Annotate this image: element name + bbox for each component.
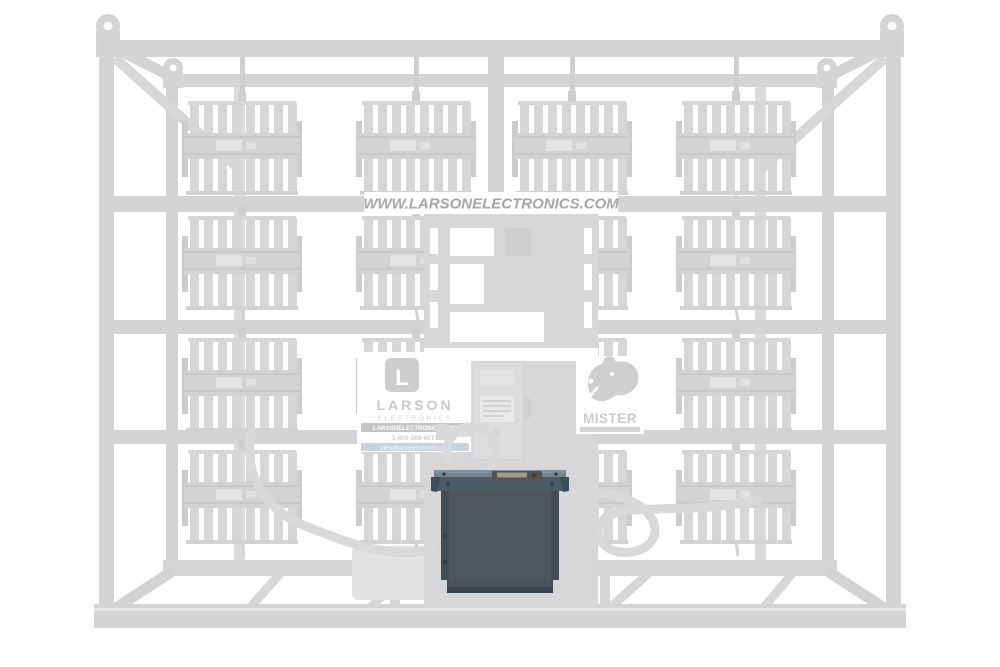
- transformer-box: [431, 470, 569, 593]
- product-photo: WWW.LARSONELECTRONICS.COM L LARSON ELECT…: [0, 0, 1000, 667]
- banner-url-text: WWW.LARSONELECTRONICS.COM: [363, 196, 619, 213]
- larson-subbrand-text: ELECTRONICS: [378, 415, 453, 422]
- larson-email-text: sales@larsonelectronics.com: [379, 446, 451, 452]
- floodlight-ghost: [676, 206, 796, 332]
- banner: WWW.LARSONELECTRONICS.COM: [363, 192, 619, 214]
- larson-logo-letter: L: [395, 365, 408, 390]
- scene: WWW.LARSONELECTRONICS.COM L LARSON ELECT…: [0, 0, 1000, 667]
- larson-phone-text: 1-800-369-6671: [392, 435, 439, 442]
- mister-placard: MISTER: [576, 356, 644, 434]
- mister-brand-text: MISTER: [583, 411, 637, 426]
- larson-brand-text: LARSON: [376, 397, 453, 413]
